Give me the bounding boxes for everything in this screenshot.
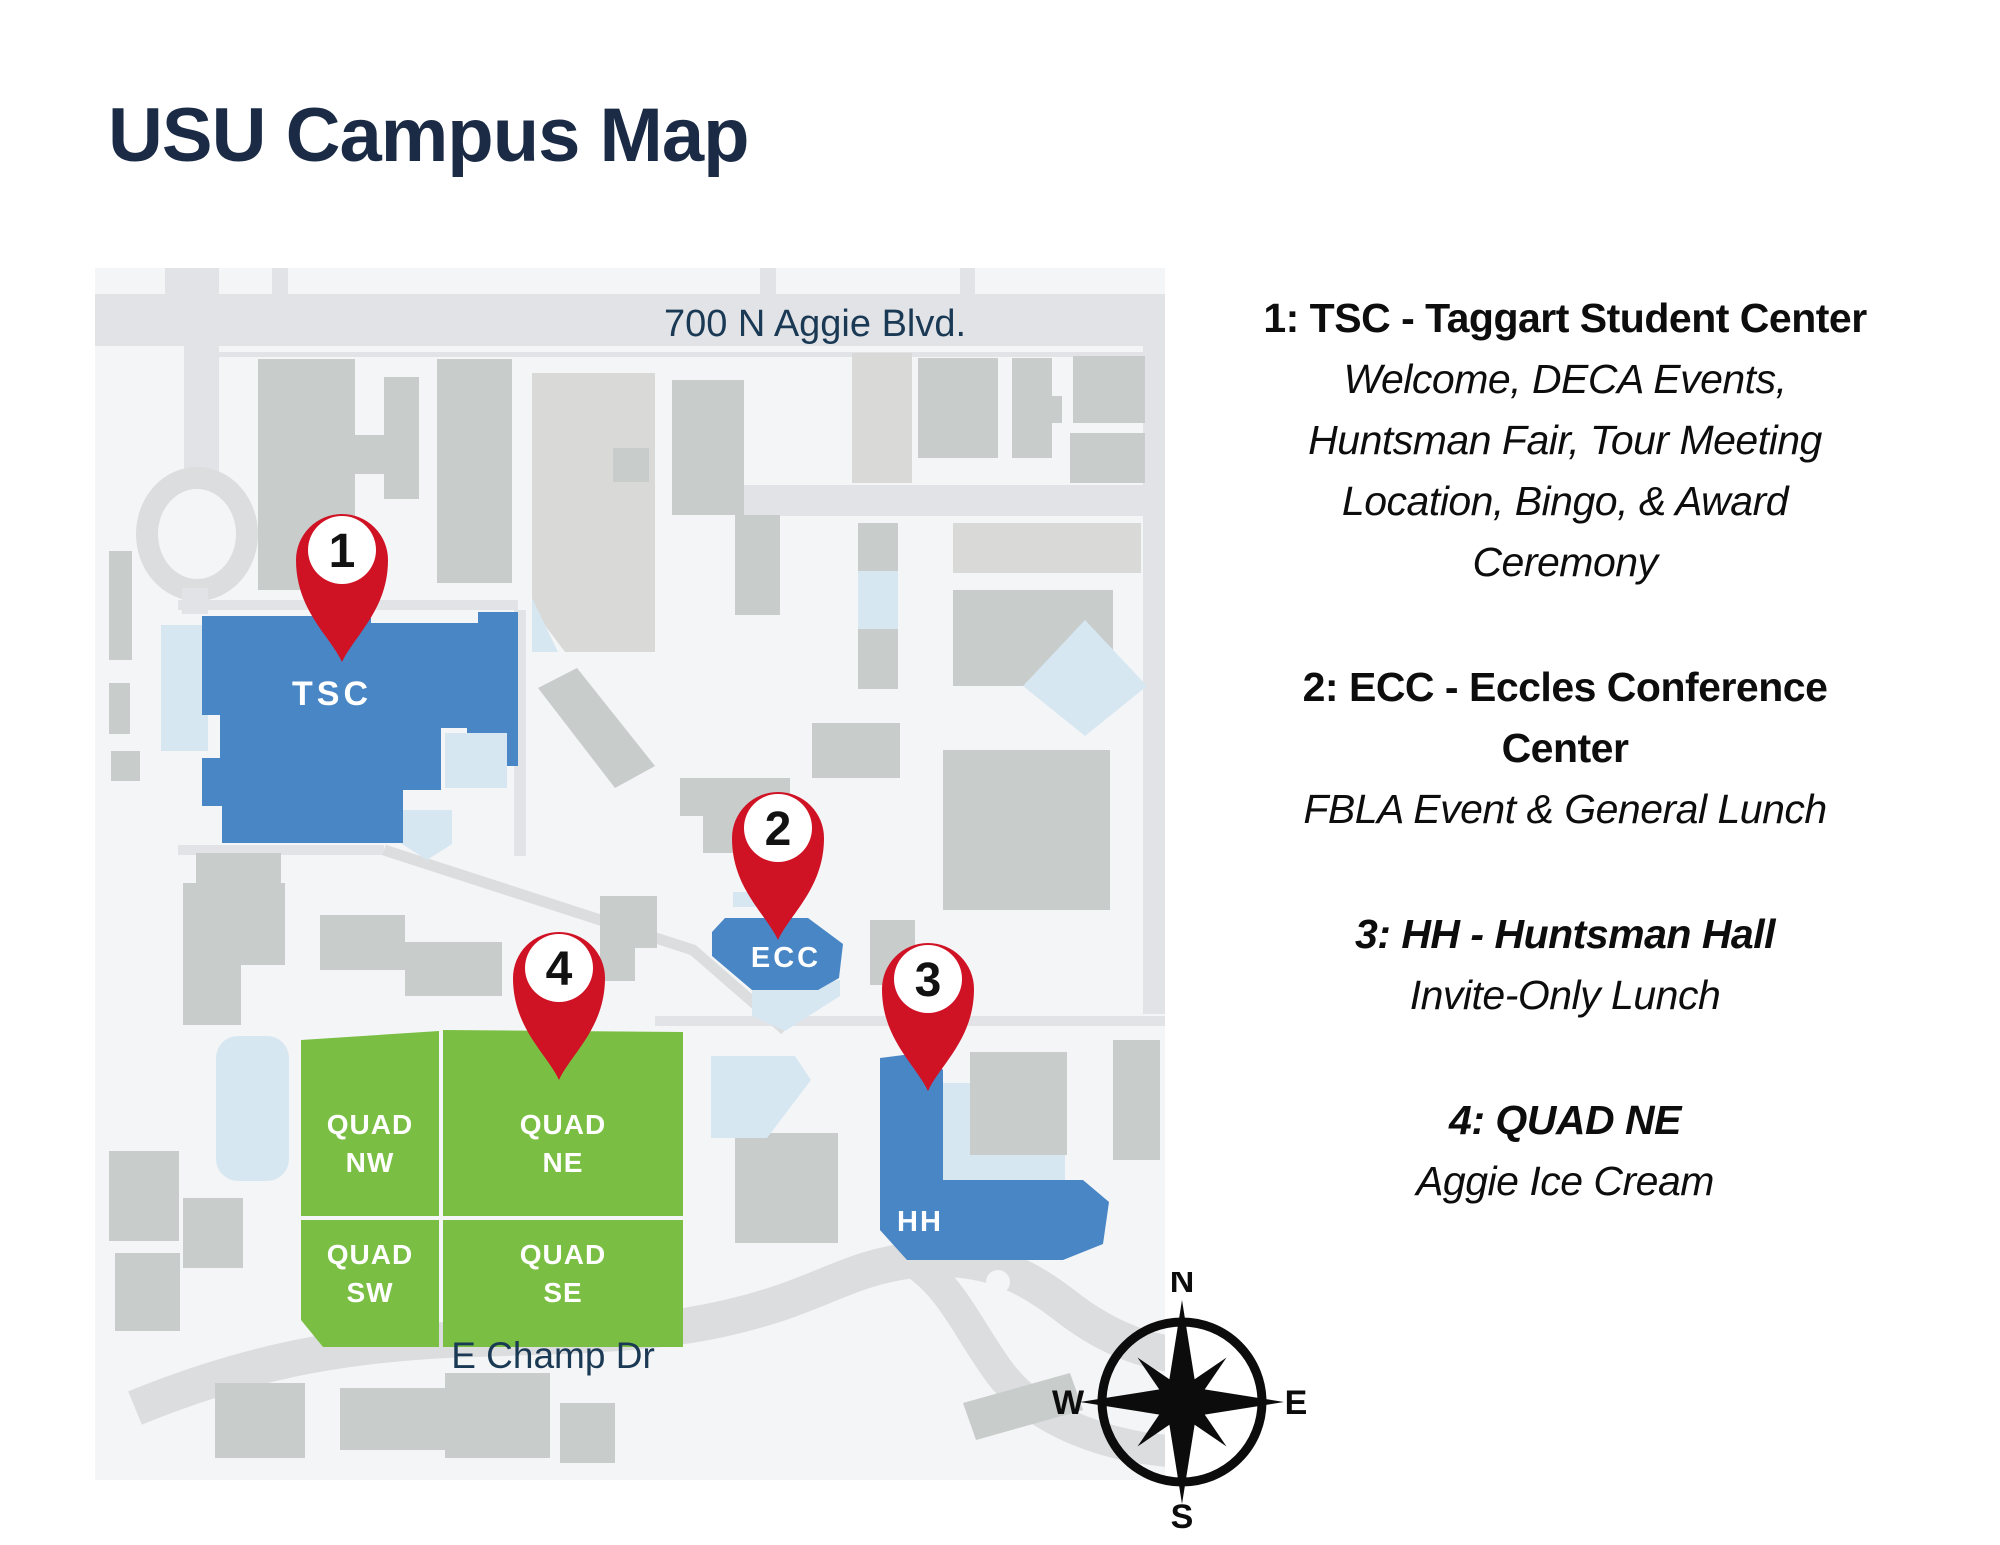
- legend-detail-line: FBLA Event & General Lunch: [1210, 779, 1920, 840]
- legend-detail-line: Invite-Only Lunch: [1210, 965, 1920, 1026]
- pin-4-number: 4: [546, 943, 573, 996]
- page: USU Campus Map: [0, 0, 2000, 1545]
- quad-nw-label-line1: QUAD: [327, 1109, 413, 1140]
- pin-1-number: 1: [329, 525, 356, 578]
- legend-detail-line: Aggie Ice Cream: [1210, 1151, 1920, 1212]
- legend-header: 1: TSC - Taggart Student Center: [1210, 288, 1920, 349]
- quad-nw-label-line2: NW: [346, 1147, 395, 1178]
- tsc-building: [202, 612, 518, 843]
- legend-detail-line: Huntsman Fair, Tour Meeting: [1210, 410, 1920, 471]
- quad-ne-label-line1: QUAD: [520, 1109, 606, 1140]
- legend-header: 3: HH - Huntsman Hall: [1210, 904, 1920, 965]
- compass-west-label: W: [1052, 1384, 1085, 1422]
- tsc-label: TSC: [292, 675, 372, 713]
- quad-sw-label-line2: SW: [346, 1277, 393, 1308]
- quad-ne-label-line2: NE: [543, 1147, 584, 1178]
- legend-detail-line: Location, Bingo, & Award: [1210, 471, 1920, 532]
- compass-south-label: S: [1171, 1498, 1194, 1532]
- legend-entry-ecc: 2: ECC - Eccles Conference Center FBLA E…: [1210, 657, 1920, 840]
- street-label-aggie-blvd: 700 N Aggie Blvd.: [664, 303, 966, 345]
- compass-north-label: N: [1170, 1272, 1195, 1300]
- legend-entry-hh: 3: HH - Huntsman Hall Invite-Only Lunch: [1210, 904, 1920, 1026]
- page-title: USU Campus Map: [108, 92, 749, 179]
- quad-sw-label-line1: QUAD: [327, 1239, 413, 1270]
- tsc-courtyard: [445, 733, 507, 788]
- legend-entry-quad-ne: 4: QUAD NE Aggie Ice Cream: [1210, 1090, 1920, 1212]
- legend-header: 2: ECC - Eccles Conference: [1210, 657, 1920, 718]
- road-aggie-blvd: [95, 294, 1165, 346]
- legend-entry-tsc: 1: TSC - Taggart Student Center Welcome,…: [1210, 288, 1920, 593]
- road-east: [742, 485, 1165, 516]
- legend-detail-line: Ceremony: [1210, 532, 1920, 593]
- ecc-label: ECC: [751, 942, 821, 974]
- hh-label: HH: [897, 1206, 943, 1238]
- compass-rose-icon: N E S W: [1052, 1272, 1312, 1532]
- legend-detail-line: Welcome, DECA Events,: [1210, 349, 1920, 410]
- pin-2-number: 2: [765, 803, 792, 856]
- quads-group: QUAD NW QUAD NE QUAD SW QUAD SE: [301, 1030, 683, 1347]
- pin-3-number: 3: [915, 954, 942, 1007]
- campus-map-graphic: QUAD NW QUAD NE QUAD SW QUAD SE TSC ECC …: [95, 268, 1165, 1480]
- legend-header: 4: QUAD NE: [1210, 1090, 1920, 1151]
- legend: 1: TSC - Taggart Student Center Welcome,…: [1210, 288, 1920, 1212]
- road-roundabout: [147, 478, 247, 590]
- compass-east-label: E: [1285, 1384, 1308, 1422]
- street-label-champ-dr: E Champ Dr: [451, 1335, 655, 1376]
- quad-se-label-line1: QUAD: [520, 1239, 606, 1270]
- legend-header: Center: [1210, 718, 1920, 779]
- campus-map: QUAD NW QUAD NE QUAD SW QUAD SE TSC ECC …: [95, 268, 1165, 1480]
- quad-se-label-line2: SE: [543, 1277, 582, 1308]
- map-pin-2: 2: [732, 792, 824, 940]
